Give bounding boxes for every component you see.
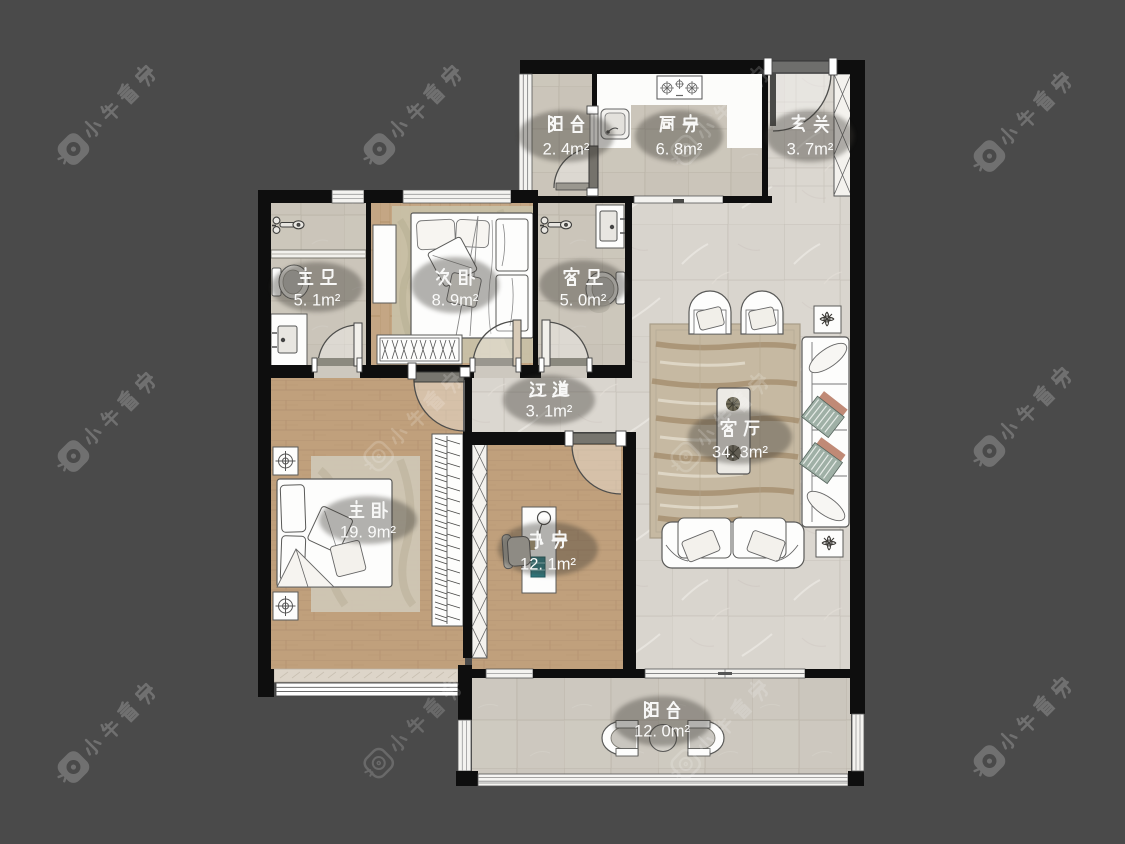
svg-text:5. 0m²: 5. 0m² bbox=[560, 292, 607, 310]
svg-text:5. 1m²: 5. 1m² bbox=[294, 292, 341, 310]
svg-text:34. 3m²: 34. 3m² bbox=[712, 444, 768, 462]
svg-text:12. 0m²: 12. 0m² bbox=[634, 723, 690, 741]
svg-text:2. 4m²: 2. 4m² bbox=[543, 141, 590, 159]
svg-text:8. 9m²: 8. 9m² bbox=[432, 292, 479, 310]
svg-text:3. 1m²: 3. 1m² bbox=[526, 403, 573, 421]
svg-text:3. 7m²: 3. 7m² bbox=[787, 141, 834, 159]
svg-text:12. 1m²: 12. 1m² bbox=[520, 556, 576, 574]
svg-text:19. 9m²: 19. 9m² bbox=[340, 524, 396, 542]
